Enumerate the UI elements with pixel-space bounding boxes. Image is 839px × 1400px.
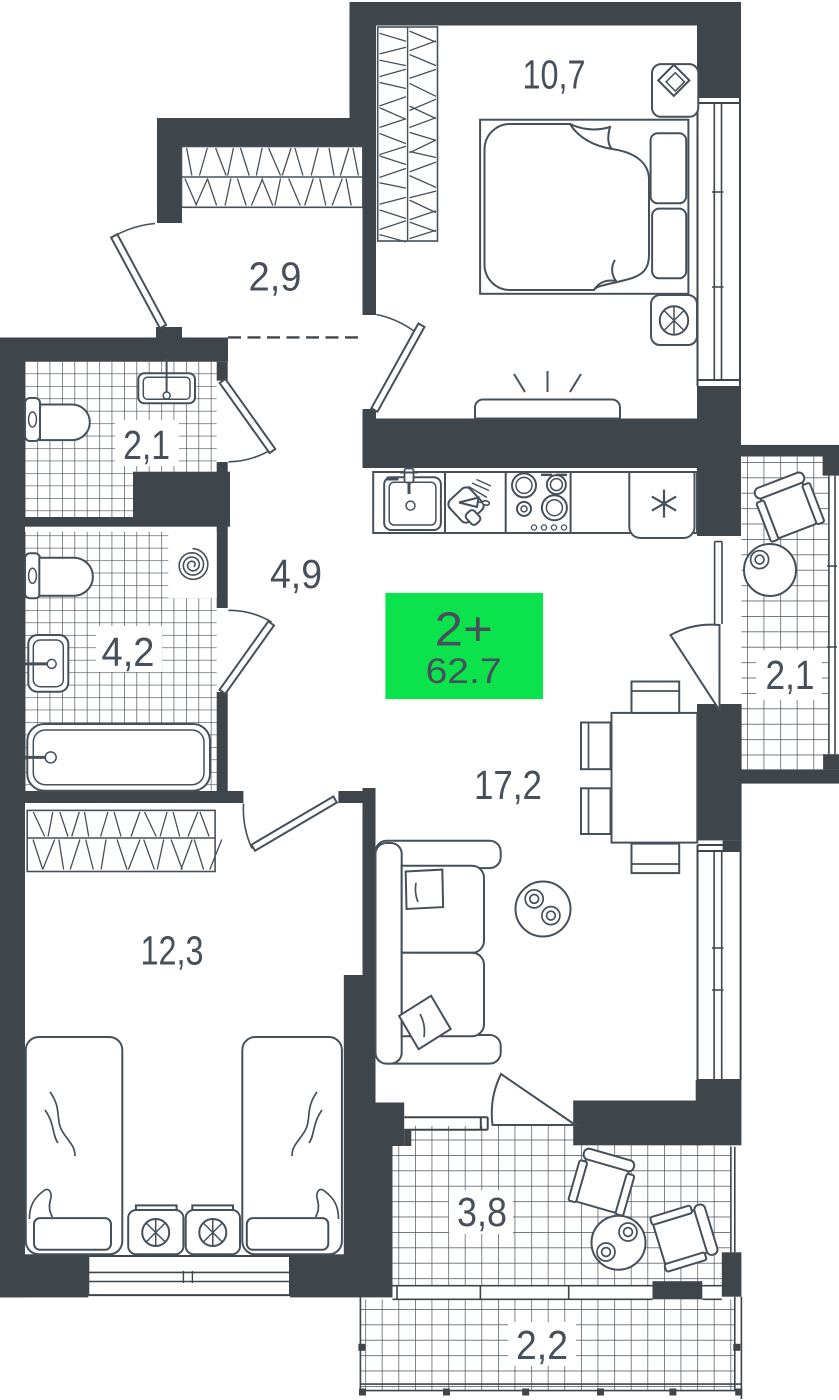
svg-text:2+: 2+ — [435, 602, 493, 656]
svg-text:10,7: 10,7 — [523, 52, 586, 98]
svg-text:4,9: 4,9 — [270, 551, 322, 597]
svg-text:2,1: 2,1 — [766, 652, 815, 698]
svg-text:2,1: 2,1 — [123, 422, 170, 468]
svg-text:2,2: 2,2 — [516, 1322, 568, 1368]
svg-text:2,9: 2,9 — [249, 254, 302, 300]
svg-text:12,3: 12,3 — [141, 928, 204, 974]
svg-text:17,2: 17,2 — [474, 762, 542, 808]
svg-text:3,8: 3,8 — [457, 1189, 507, 1235]
svg-text:62.7: 62.7 — [426, 651, 502, 691]
svg-text:4,2: 4,2 — [102, 629, 155, 675]
